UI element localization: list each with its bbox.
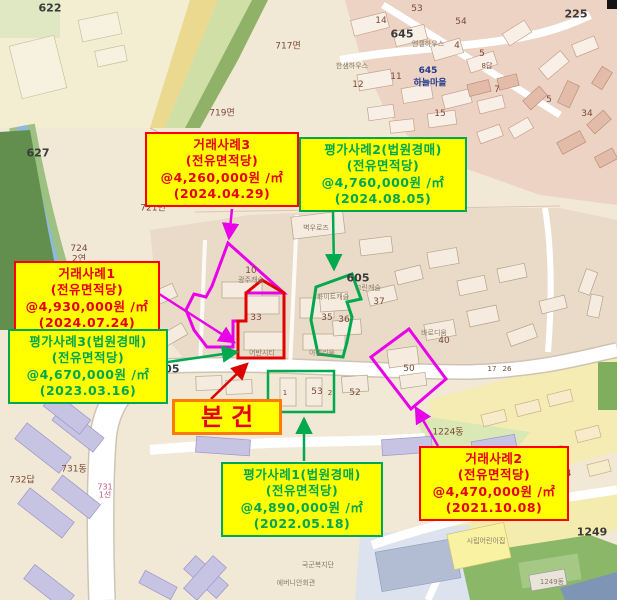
- map-label: 1선: [99, 490, 111, 501]
- map-label: 53: [311, 387, 322, 397]
- callout-sale3-basis: (전유면적당): [149, 153, 295, 169]
- callout-sale2-price: @4,470,000원 /㎡: [423, 484, 565, 500]
- map-label: 1249동: [540, 577, 564, 587]
- callout-appraisal1-date: (2022.05.18): [225, 516, 379, 532]
- map-canvas: 622717면719면721면6277242연22564514645하늘마을한샘…: [0, 0, 617, 600]
- map-label: 35: [321, 313, 332, 323]
- map-label: 광주캐슬: [238, 275, 264, 285]
- map-label: 732답: [9, 473, 34, 486]
- map-label: 17: [488, 365, 497, 373]
- map-label: 622: [39, 2, 62, 15]
- callout-sale3: 거래사례3 (전유면적당) @4,260,000원 /㎡ (2024.04.29…: [145, 132, 299, 207]
- map-label: 33: [250, 313, 261, 323]
- map-label: 1: [283, 389, 287, 397]
- map-label: 12: [352, 80, 363, 90]
- callout-sale3-price: @4,260,000원 /㎡: [149, 170, 295, 186]
- callout-subject: 본건: [172, 399, 282, 435]
- map-label: 54: [455, 17, 466, 27]
- map-label: 벽우로즈: [303, 223, 329, 233]
- map-label: 시립어린이집: [467, 536, 506, 546]
- callout-appraisal2-basis: (전유면적당): [303, 158, 463, 174]
- map-label: 8답: [482, 61, 493, 71]
- map-label: 7: [494, 85, 500, 95]
- map-label: 627: [27, 147, 50, 160]
- map-label: 어반시티: [249, 348, 275, 358]
- map-label: 5: [546, 95, 552, 105]
- map-label: 하늘마을: [413, 76, 446, 89]
- callout-sale1-title: 거래사례1: [18, 266, 156, 282]
- map-label: 화이트캐슬: [317, 292, 349, 302]
- map-label: 645: [391, 28, 414, 41]
- callout-appraisal1: 평가사례1(법원경매) (전유면적당) @4,890,000원 /㎡ (2022…: [221, 462, 383, 537]
- callout-sale1-price: @4,930,000원 /㎡: [18, 299, 156, 315]
- callout-appraisal1-basis: (전유면적당): [225, 483, 379, 499]
- callout-appraisal3-basis: (전유면적당): [12, 350, 164, 366]
- map-label: 에버니안회관: [277, 578, 316, 588]
- map-label: 225: [565, 8, 588, 21]
- map-label: 4: [454, 41, 460, 51]
- map-label: 그린캐슬: [355, 283, 381, 293]
- callout-appraisal3: 평가사례3(법원경매) (전유면적당) @4,670,000원 /㎡ (2023…: [8, 329, 168, 404]
- callout-appraisal1-price: @4,890,000원 /㎡: [225, 500, 379, 516]
- map-label: 엔젤하우스: [412, 39, 444, 49]
- callout-appraisal3-title: 평가사례3(법원경매): [12, 334, 164, 350]
- map-label: 50: [403, 364, 414, 374]
- map-label: 바로디움: [421, 328, 447, 338]
- map-label: 2: [328, 389, 332, 397]
- callout-appraisal3-price: @4,670,000원 /㎡: [12, 367, 164, 383]
- map-label: 36: [338, 315, 349, 325]
- map-label: 한샘하우스: [336, 61, 368, 71]
- map-label: 37: [373, 297, 384, 307]
- callout-sale1: 거래사례1 (전유면적당) @4,930,000원 /㎡ (2024.07.24…: [14, 261, 160, 336]
- callout-appraisal2-price: @4,760,000원 /㎡: [303, 175, 463, 191]
- map-label: 5: [479, 49, 485, 59]
- map-label: 719면: [209, 106, 234, 119]
- map-label: 14: [375, 16, 386, 26]
- subject-label: 본건: [201, 403, 261, 431]
- map-label: 53: [411, 4, 422, 14]
- map-label: 52: [349, 388, 360, 398]
- map-label: 1249: [577, 526, 608, 539]
- callout-sale2-date: (2021.10.08): [423, 500, 565, 516]
- map-label: 아델리움: [309, 348, 335, 358]
- map-label: 15: [434, 109, 445, 119]
- callout-appraisal1-title: 평가사례1(법원경매): [225, 467, 379, 483]
- callout-appraisal2-title: 평가사례2(법원경매): [303, 142, 463, 158]
- callout-sale2: 거래사례2 (전유면적당) @4,470,000원 /㎡ (2021.10.08…: [419, 446, 569, 521]
- callout-sale3-title: 거래사례3: [149, 137, 295, 153]
- callout-appraisal2: 평가사례2(법원경매) (전유면적당) @4,760,000원 /㎡ (2024…: [299, 137, 467, 212]
- callout-sale1-basis: (전유면적당): [18, 282, 156, 298]
- callout-appraisal3-date: (2023.03.16): [12, 383, 164, 399]
- map-label: 34: [581, 109, 592, 119]
- callout-sale2-basis: (전유면적당): [423, 467, 565, 483]
- map-label: 11: [390, 72, 401, 82]
- callout-sale2-title: 거래사례2: [423, 451, 565, 467]
- callout-sale3-date: (2024.04.29): [149, 186, 295, 202]
- callout-appraisal2-date: (2024.08.05): [303, 191, 463, 207]
- map-label: 국군복지단: [302, 560, 334, 570]
- arrow-app2: [333, 212, 334, 269]
- map-label: 731동: [61, 462, 86, 475]
- map-label: 26: [503, 365, 512, 373]
- map-label: 645: [419, 66, 438, 76]
- map-label: 717면: [275, 39, 300, 52]
- map-label: 1224동: [432, 425, 463, 438]
